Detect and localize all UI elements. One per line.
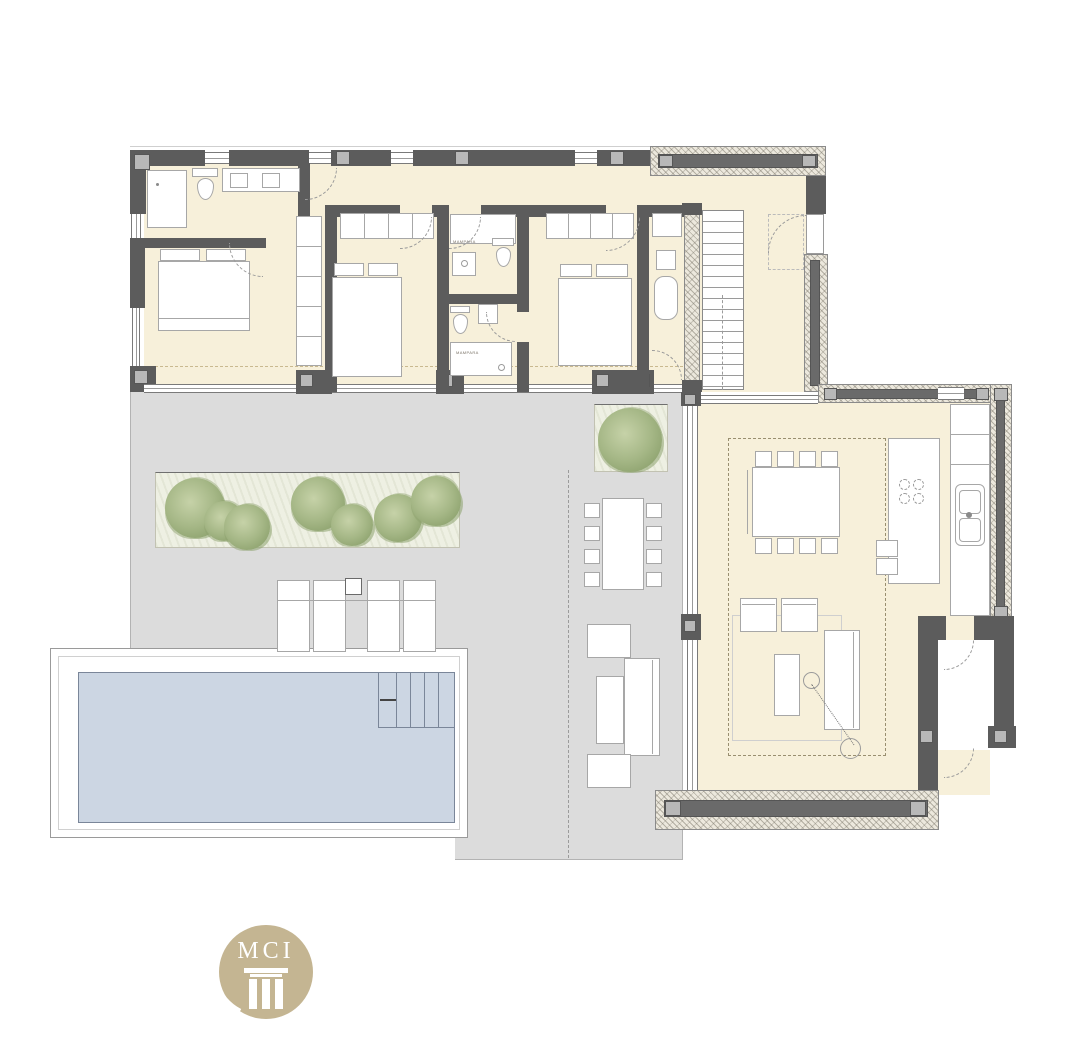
column-block <box>300 374 313 387</box>
outdoor-chair <box>646 526 662 541</box>
arc-lamp-shade-icon <box>840 738 861 759</box>
pool-handrail <box>380 699 396 701</box>
pool-steps <box>396 672 397 728</box>
armchair-back-line <box>783 604 816 605</box>
outdoor-armchair <box>587 624 631 658</box>
tree-icon <box>224 504 270 550</box>
pool-step-divider <box>378 727 455 728</box>
column-block <box>134 154 150 170</box>
sink-basin <box>959 518 981 542</box>
sink-drain-icon <box>461 260 468 267</box>
column-shaft-icon <box>275 979 283 1009</box>
cooktop-burner-icon <box>913 479 924 490</box>
wardrobe-divider <box>388 213 389 239</box>
sink-icon <box>656 250 676 270</box>
column-block <box>134 370 148 384</box>
wall <box>449 294 517 304</box>
sun-lounger <box>313 580 346 652</box>
pool-steps <box>410 672 411 728</box>
wall <box>682 380 702 392</box>
toilet-icon <box>450 306 470 313</box>
window <box>575 152 597 164</box>
wardrobe-divider <box>364 213 365 239</box>
wall <box>806 176 826 214</box>
wall-core <box>664 800 928 817</box>
swimming-pool <box>78 672 455 823</box>
wardrobe-shelf-line <box>296 276 322 277</box>
column-block <box>665 801 681 816</box>
window <box>938 387 964 400</box>
bed-icon <box>332 277 402 377</box>
wall <box>413 150 575 166</box>
column-block <box>824 388 837 400</box>
wall <box>437 205 449 392</box>
cooktop-burner-icon <box>899 479 910 490</box>
front-door-opening <box>806 214 824 254</box>
roof-overhang-dashed-line <box>140 366 688 367</box>
tree-icon <box>598 408 662 472</box>
sliding-glass-door <box>687 402 698 790</box>
column-capital-icon <box>250 974 282 977</box>
wall <box>682 203 702 215</box>
column-block <box>684 394 696 405</box>
column-block <box>910 801 926 816</box>
outdoor-dining-table <box>602 498 644 590</box>
wall-core <box>658 154 818 168</box>
shelf <box>652 213 682 237</box>
wall <box>918 616 938 794</box>
pillow-icon <box>596 264 628 277</box>
sofa-back-line <box>853 632 854 728</box>
tree-icon <box>331 504 373 546</box>
tree-icon <box>411 476 461 526</box>
outdoor-chair <box>646 572 662 587</box>
window <box>391 152 413 164</box>
logo-text: MCI <box>219 938 313 964</box>
terrace-edge <box>130 392 131 648</box>
wardrobe-shelf-line <box>296 336 322 337</box>
faucet-icon <box>966 512 972 518</box>
sink-icon <box>230 173 248 188</box>
outdoor-chair <box>584 572 600 587</box>
cooktop-burner-icon <box>899 493 910 504</box>
lounger-backrest <box>277 600 436 601</box>
shower-screen-label: MAMPARA <box>456 350 516 355</box>
wardrobe-shelf-line <box>296 306 322 307</box>
window <box>205 152 229 164</box>
column-block <box>684 620 696 632</box>
wall-core <box>810 260 820 386</box>
insulated-wall <box>684 203 700 393</box>
shower-drain-icon <box>498 364 505 371</box>
wall <box>130 238 145 308</box>
dining-chair <box>799 538 816 554</box>
column-shaft-icon <box>262 979 270 1009</box>
outdoor-chair <box>584 503 600 518</box>
sun-lounger <box>403 580 436 652</box>
bed-icon <box>558 278 632 366</box>
column-block <box>610 151 624 165</box>
wardrobe-shelf-line <box>296 246 322 247</box>
sun-lounger <box>277 580 310 652</box>
sink-basin <box>959 490 981 514</box>
window <box>131 214 141 238</box>
dining-chair <box>755 451 772 467</box>
sofa <box>824 630 860 730</box>
stair-center-line <box>722 295 723 390</box>
staircase <box>702 210 744 390</box>
bathtub-icon <box>654 276 678 320</box>
wall <box>637 205 649 392</box>
column-block <box>920 730 933 743</box>
wall-core <box>996 392 1005 624</box>
terrace-edge <box>455 859 683 860</box>
wardrobe <box>296 216 322 366</box>
column-block <box>455 151 469 165</box>
pool-steps <box>438 672 439 728</box>
arc-lamp-base-icon <box>803 672 820 689</box>
shower-icon <box>450 342 512 376</box>
side-table <box>345 578 362 595</box>
sink-icon <box>262 173 280 188</box>
dining-table <box>752 467 840 537</box>
bed-icon <box>158 261 250 331</box>
counter-divider <box>950 434 990 435</box>
wardrobe-divider <box>590 213 591 239</box>
armchair-back-line <box>742 604 775 605</box>
column-block <box>994 730 1007 743</box>
dining-chair <box>821 538 838 554</box>
column-block <box>802 155 816 167</box>
window <box>309 152 331 164</box>
pool-steps <box>378 672 379 728</box>
outdoor-chair <box>646 549 662 564</box>
column-block <box>994 388 1008 401</box>
counter-divider <box>950 464 990 465</box>
column-block <box>596 374 609 387</box>
window <box>132 308 140 366</box>
dining-bench-line <box>747 470 748 534</box>
pillow-icon <box>160 249 200 261</box>
column-block <box>659 155 673 167</box>
dining-chair <box>777 451 794 467</box>
outdoor-chair <box>584 526 600 541</box>
outdoor-coffee-table <box>596 676 624 744</box>
dining-chair <box>777 538 794 554</box>
shower-drain-icon <box>156 183 159 186</box>
column-shaft-icon <box>249 979 257 1009</box>
coffee-table <box>774 654 800 716</box>
outdoor-chair <box>646 503 662 518</box>
dining-chair <box>821 451 838 467</box>
floor-plan: MAMPARA MAMPARA MCI <box>0 0 1071 1042</box>
wall <box>517 205 529 312</box>
column-capital-icon <box>244 968 288 973</box>
island-appliance <box>876 540 898 557</box>
bed-foot-line <box>158 318 250 319</box>
sun-lounger <box>367 580 400 652</box>
outdoor-sofa <box>624 658 660 756</box>
pillow-icon <box>368 263 398 276</box>
toilet-icon <box>192 168 218 177</box>
terrace-dashed-line <box>568 470 569 858</box>
wardrobe-divider <box>568 213 569 239</box>
window <box>700 395 818 404</box>
toilet-icon <box>492 238 514 246</box>
eave-line <box>130 146 690 147</box>
outdoor-chair <box>584 549 600 564</box>
wall <box>229 150 309 166</box>
pool-steps <box>424 672 425 728</box>
cooktop-burner-icon <box>913 493 924 504</box>
pillow-icon <box>334 263 364 276</box>
wall <box>517 342 529 392</box>
column-block <box>336 151 350 165</box>
pillow-icon <box>560 264 592 277</box>
sofa-back-line <box>652 660 653 754</box>
island-appliance <box>876 558 898 575</box>
dining-chair <box>755 538 772 554</box>
dining-chair <box>799 451 816 467</box>
outdoor-armchair <box>587 754 631 788</box>
shower-icon <box>147 170 187 228</box>
column-block <box>976 388 989 400</box>
